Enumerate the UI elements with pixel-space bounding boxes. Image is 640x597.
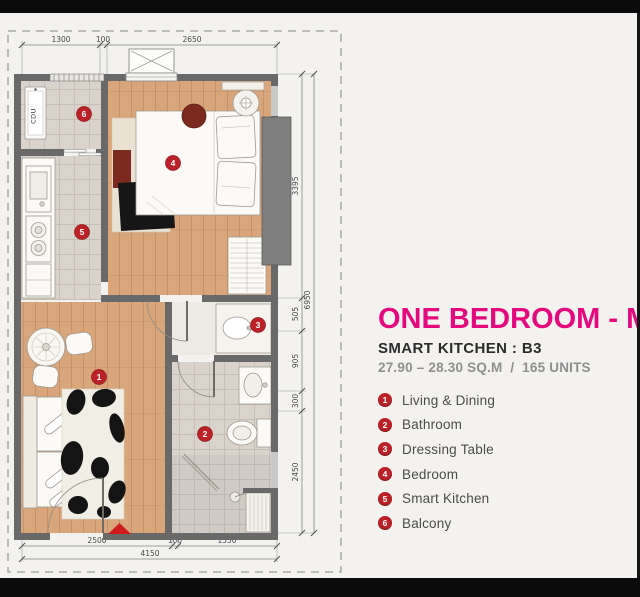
cdu-unit: CDU	[25, 87, 46, 139]
legend-item-kitchen: 5 Smart Kitchen	[378, 486, 640, 511]
legend-label: Dressing Table	[402, 442, 494, 457]
legend-badge: 2	[378, 418, 392, 432]
legend-badge: 4	[378, 467, 392, 481]
marker-bedroom: 4	[166, 156, 181, 171]
screenshot-root: 1300 100 2650 2500 100 1550 4150 3395 50…	[0, 0, 640, 597]
legend-badge: 3	[378, 442, 392, 456]
legend-badge: 6	[378, 516, 392, 530]
kitchen-counter	[22, 158, 55, 298]
svg-text:4150: 4150	[140, 549, 159, 558]
svg-text:5: 5	[80, 227, 85, 237]
plan-area-units: 27.90 – 28.30 SQ.M / 165 UNITS	[378, 361, 640, 375]
svg-text:2: 2	[203, 429, 208, 439]
legend-item-bedroom: 4 Bedroom	[378, 462, 640, 487]
marker-living: 1	[92, 370, 107, 385]
svg-text:1300: 1300	[51, 35, 70, 44]
bedside-table	[233, 90, 259, 116]
legend-item-bathroom: 2 Bathroom	[378, 413, 640, 438]
svg-text:100: 100	[96, 35, 111, 44]
letterbox-bottom-bar	[0, 578, 640, 597]
legend-label: Smart Kitchen	[402, 491, 489, 506]
marker-kitchen: 5	[75, 225, 90, 240]
svg-text:3395: 3395	[291, 176, 300, 195]
info-panel: ONE BEDROOM - M SMART KITCHEN : B3 27.90…	[378, 303, 640, 536]
svg-text:2650: 2650	[182, 35, 201, 44]
legend-label: Bathroom	[402, 417, 462, 432]
svg-text:505: 505	[291, 307, 300, 322]
legend: 1 Living & Dining 2 Bathroom 3 Dressing …	[378, 388, 640, 536]
svg-text:2450: 2450	[291, 462, 300, 481]
svg-text:1: 1	[97, 372, 102, 382]
marker-balcony: 6	[77, 107, 92, 122]
svg-text:6: 6	[82, 109, 87, 119]
letterbox-top-bar	[0, 0, 640, 13]
svg-text:4: 4	[171, 158, 176, 168]
plan-subtitle: SMART KITCHEN : B3	[378, 341, 640, 356]
bed	[136, 104, 260, 215]
svg-text:300: 300	[291, 394, 300, 409]
plan-title: ONE BEDROOM - M	[378, 303, 640, 335]
wall-shelf	[222, 82, 264, 90]
bathroom-sink	[239, 367, 271, 404]
legend-item-living: 1 Living & Dining	[378, 388, 640, 413]
legend-label: Balcony	[402, 516, 451, 531]
svg-text:3: 3	[256, 320, 261, 330]
living-rug	[58, 387, 128, 519]
legend-label: Living & Dining	[402, 393, 495, 408]
svg-text:905: 905	[291, 354, 300, 369]
legend-item-balcony: 6 Balcony	[378, 511, 640, 536]
marker-bathroom: 2	[198, 427, 213, 442]
toilet	[227, 419, 271, 447]
svg-text:CDU: CDU	[30, 108, 38, 124]
svg-text:6950: 6950	[303, 290, 312, 309]
marker-dressing: 3	[251, 318, 266, 333]
legend-badge: 5	[378, 492, 392, 506]
right-window-top	[271, 86, 278, 116]
wardrobe	[262, 117, 291, 265]
right-window-bath	[271, 452, 278, 488]
balcony-sliding-door	[64, 150, 101, 156]
legend-label: Bedroom	[402, 467, 458, 482]
balcony-vent	[50, 74, 104, 81]
dresser	[228, 237, 266, 294]
legend-item-dressing: 3 Dressing Table	[378, 437, 640, 462]
legend-badge: 1	[378, 393, 392, 407]
